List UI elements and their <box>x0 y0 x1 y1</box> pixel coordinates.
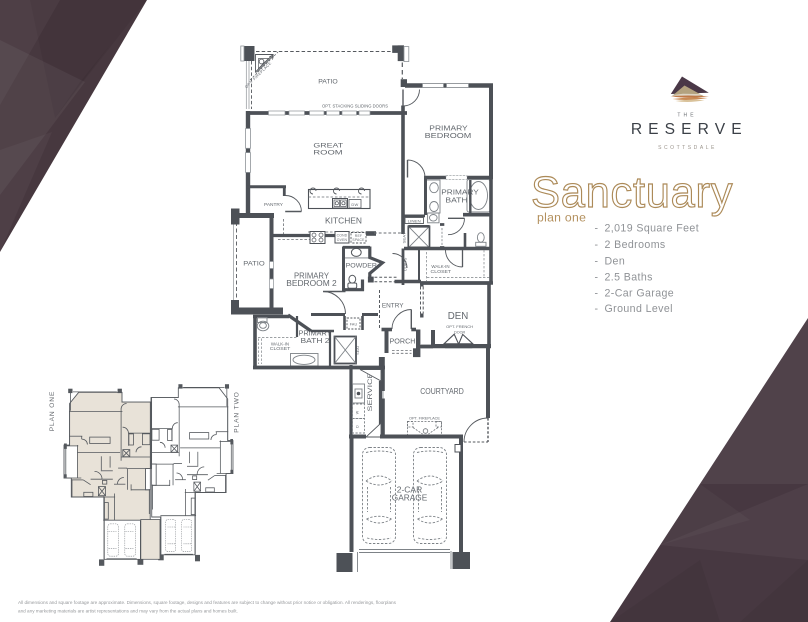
svg-text:RESERVE: RESERVE <box>631 121 748 138</box>
svg-text:Ground Level: Ground Level <box>605 303 673 315</box>
svg-text:COURTYARD: COURTYARD <box>420 386 464 396</box>
svg-text:2 Bedrooms: 2 Bedrooms <box>605 239 666 251</box>
svg-text:plan one: plan one <box>537 211 586 225</box>
svg-text:POWDER: POWDER <box>346 263 378 270</box>
svg-text:DW: DW <box>351 202 358 207</box>
svg-text:PRIMARY: PRIMARY <box>441 189 479 196</box>
svg-text:GREAT: GREAT <box>313 143 343 150</box>
svg-text:KITCHEN: KITCHEN <box>325 216 362 226</box>
svg-text:SEAT: SEAT <box>403 231 407 243</box>
svg-text:PLAN TWO: PLAN TWO <box>234 391 241 433</box>
svg-text:SCOTTSDALE: SCOTTSDALE <box>658 145 717 151</box>
svg-text:SEAT: SEAT <box>356 345 360 354</box>
svg-text:PANTRY: PANTRY <box>264 202 283 207</box>
svg-text:2.5 Baths: 2.5 Baths <box>605 272 653 284</box>
svg-text:LINEN: LINEN <box>408 218 421 223</box>
svg-text:SPACE: SPACE <box>352 238 365 242</box>
svg-text:DEN: DEN <box>448 311 469 322</box>
svg-text:-: - <box>595 272 599 284</box>
svg-text:W: W <box>356 410 360 414</box>
svg-text:-: - <box>595 303 599 315</box>
svg-text:BATH 2: BATH 2 <box>301 336 330 345</box>
svg-text:ENTRY: ENTRY <box>382 303 404 310</box>
svg-text:BEDROOM: BEDROOM <box>425 131 472 140</box>
svg-text:PATIO: PATIO <box>318 79 338 86</box>
svg-text:-: - <box>595 223 599 235</box>
svg-text:Den: Den <box>605 255 626 267</box>
svg-text:OPT. STACKING SLIDING DOORS: OPT. STACKING SLIDING DOORS <box>322 104 388 109</box>
svg-text:PATIO: PATIO <box>243 261 264 268</box>
svg-text:and any marketing materials ar: and any marketing materials are artist r… <box>18 609 238 614</box>
svg-text:-: - <box>595 288 599 300</box>
svg-text:-: - <box>595 239 599 251</box>
svg-text:2,019 Square Feet: 2,019 Square Feet <box>605 223 700 235</box>
svg-text:CLOSET: CLOSET <box>431 269 452 274</box>
svg-text:BEDROOM 2: BEDROOM 2 <box>286 279 337 288</box>
svg-text:PORCH: PORCH <box>390 338 416 345</box>
svg-text:PLAN ONE: PLAN ONE <box>49 391 56 432</box>
svg-text:OVEN: OVEN <box>337 238 348 242</box>
svg-text:SERVICE: SERVICE <box>367 372 374 412</box>
svg-text:CLOSET: CLOSET <box>270 346 291 351</box>
svg-text:THE: THE <box>677 113 696 119</box>
svg-text:D: D <box>356 425 360 428</box>
svg-text:-: - <box>595 255 599 267</box>
svg-text:All dimensions and square foot: All dimensions and square footage are ap… <box>18 600 397 605</box>
svg-text:FAU: FAU <box>350 322 358 326</box>
svg-text:BATH: BATH <box>445 198 467 205</box>
svg-text:ROOM: ROOM <box>313 150 342 157</box>
svg-text:DOOR: DOOR <box>454 329 465 334</box>
svg-text:GARAGE: GARAGE <box>392 494 428 503</box>
svg-text:OPT. FIREPLACE: OPT. FIREPLACE <box>409 415 440 420</box>
svg-text:2-Car Garage: 2-Car Garage <box>605 288 675 300</box>
